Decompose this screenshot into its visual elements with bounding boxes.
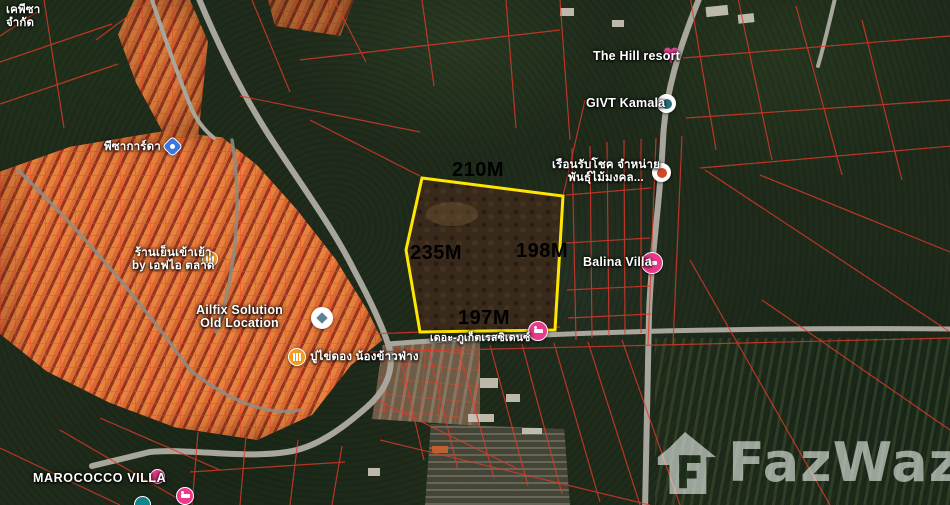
label-line: จำกัด [6, 17, 40, 30]
restaurant-icon [296, 353, 298, 361]
place-label-balina-villa[interactable]: Balina Villa [583, 256, 652, 269]
label-line: by เอฟไอ ตลาด [132, 260, 215, 273]
label-line: ร้านเย็นเข้าเย้า [132, 247, 215, 260]
place-label-hill-resort[interactable]: The Hill resort [593, 50, 680, 63]
marococco-marker-2[interactable] [176, 487, 194, 505]
label-line: เรือนรับโชค จำหน่าย [552, 159, 660, 172]
compass-icon [316, 312, 327, 323]
place-label-givt-kamala[interactable]: GIVT Kamala [586, 97, 665, 110]
label-line: เคพีซา [6, 4, 40, 17]
label-line: พันธุ์ไม้มงคล... [552, 172, 660, 185]
measurement-left: 235M [410, 243, 462, 263]
place-label-marococco[interactable]: MAROCOCCO VILLA [33, 472, 166, 485]
pin-dot-icon [169, 143, 176, 150]
measurement-top: 210M [452, 160, 504, 180]
place-label-ruen-rab-chok[interactable]: เรือนรับโชค จำหน่าย พันธุ์ไม้มงคล... [552, 159, 660, 185]
phuket-residence-marker[interactable] [528, 321, 548, 341]
bed-icon [181, 494, 190, 498]
place-label-company[interactable]: เคพีซา จำกัด [6, 4, 40, 30]
measurement-right: 198M [516, 241, 568, 261]
place-label-pizagarda[interactable]: พีซาการ์ดา [104, 141, 161, 154]
pu-khai-dong-marker[interactable] [288, 348, 306, 366]
place-label-noodle-shop[interactable]: ร้านเย็นเข้าเย้า by เอฟไอ ตลาด [132, 247, 215, 273]
measurement-bottom: 197M [458, 308, 510, 328]
ailfix-marker[interactable] [311, 307, 333, 329]
place-label-pu-khai-dong[interactable]: ปูไข่ดอง น้องข้าวฟ่าง [310, 351, 419, 364]
satellite-map-canvas[interactable]: ♥ เคพีซา จำกัด พีซาการ์ดา The Hill resor… [0, 0, 950, 505]
bed-icon [534, 329, 543, 333]
label-line: Old Location [172, 317, 307, 330]
place-label-ailfix[interactable]: Ailfix Solution Old Location [172, 304, 307, 330]
place-label-phuket-residence[interactable]: เดอะ-ภูเก็ตเรสซิเดนซ์ [430, 332, 530, 345]
